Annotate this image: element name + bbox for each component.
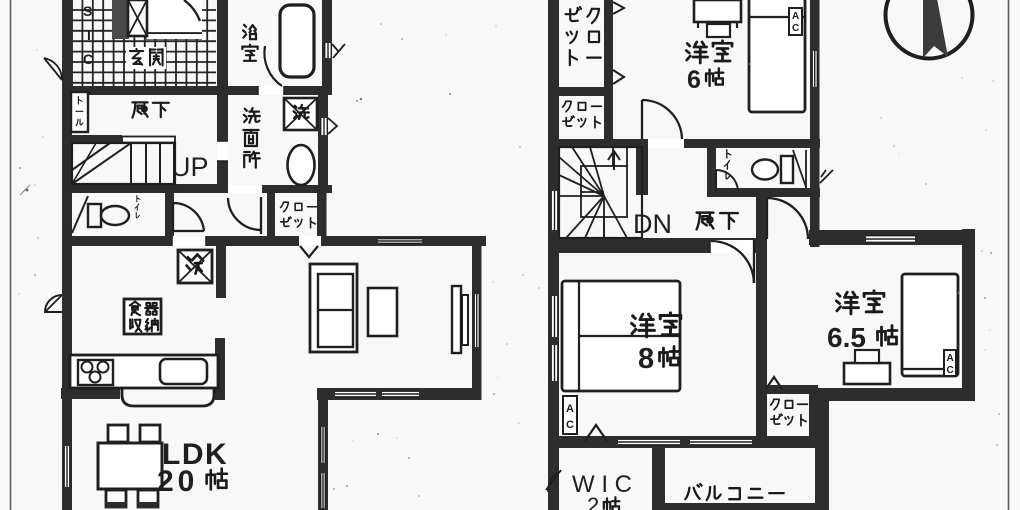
svg-text:2: 2 — [587, 493, 599, 510]
svg-text:8: 8 — [638, 343, 654, 375]
svg-text:DN: DN — [633, 209, 672, 239]
svg-text:S: S — [83, 3, 92, 19]
svg-text:A: A — [566, 403, 574, 415]
svg-text:6: 6 — [687, 66, 701, 94]
svg-text:C: C — [83, 51, 93, 67]
svg-text:6.5: 6.5 — [827, 322, 866, 353]
svg-text:W I C: W I C — [572, 471, 632, 498]
svg-text:C: C — [792, 23, 799, 34]
svg-text:I: I — [87, 27, 91, 43]
svg-text:A: A — [947, 353, 954, 364]
svg-text:C: C — [947, 365, 954, 376]
svg-text:UP: UP — [171, 152, 209, 182]
svg-text:C: C — [566, 419, 574, 431]
svg-text:A: A — [792, 11, 799, 22]
svg-text:20: 20 — [157, 465, 198, 498]
